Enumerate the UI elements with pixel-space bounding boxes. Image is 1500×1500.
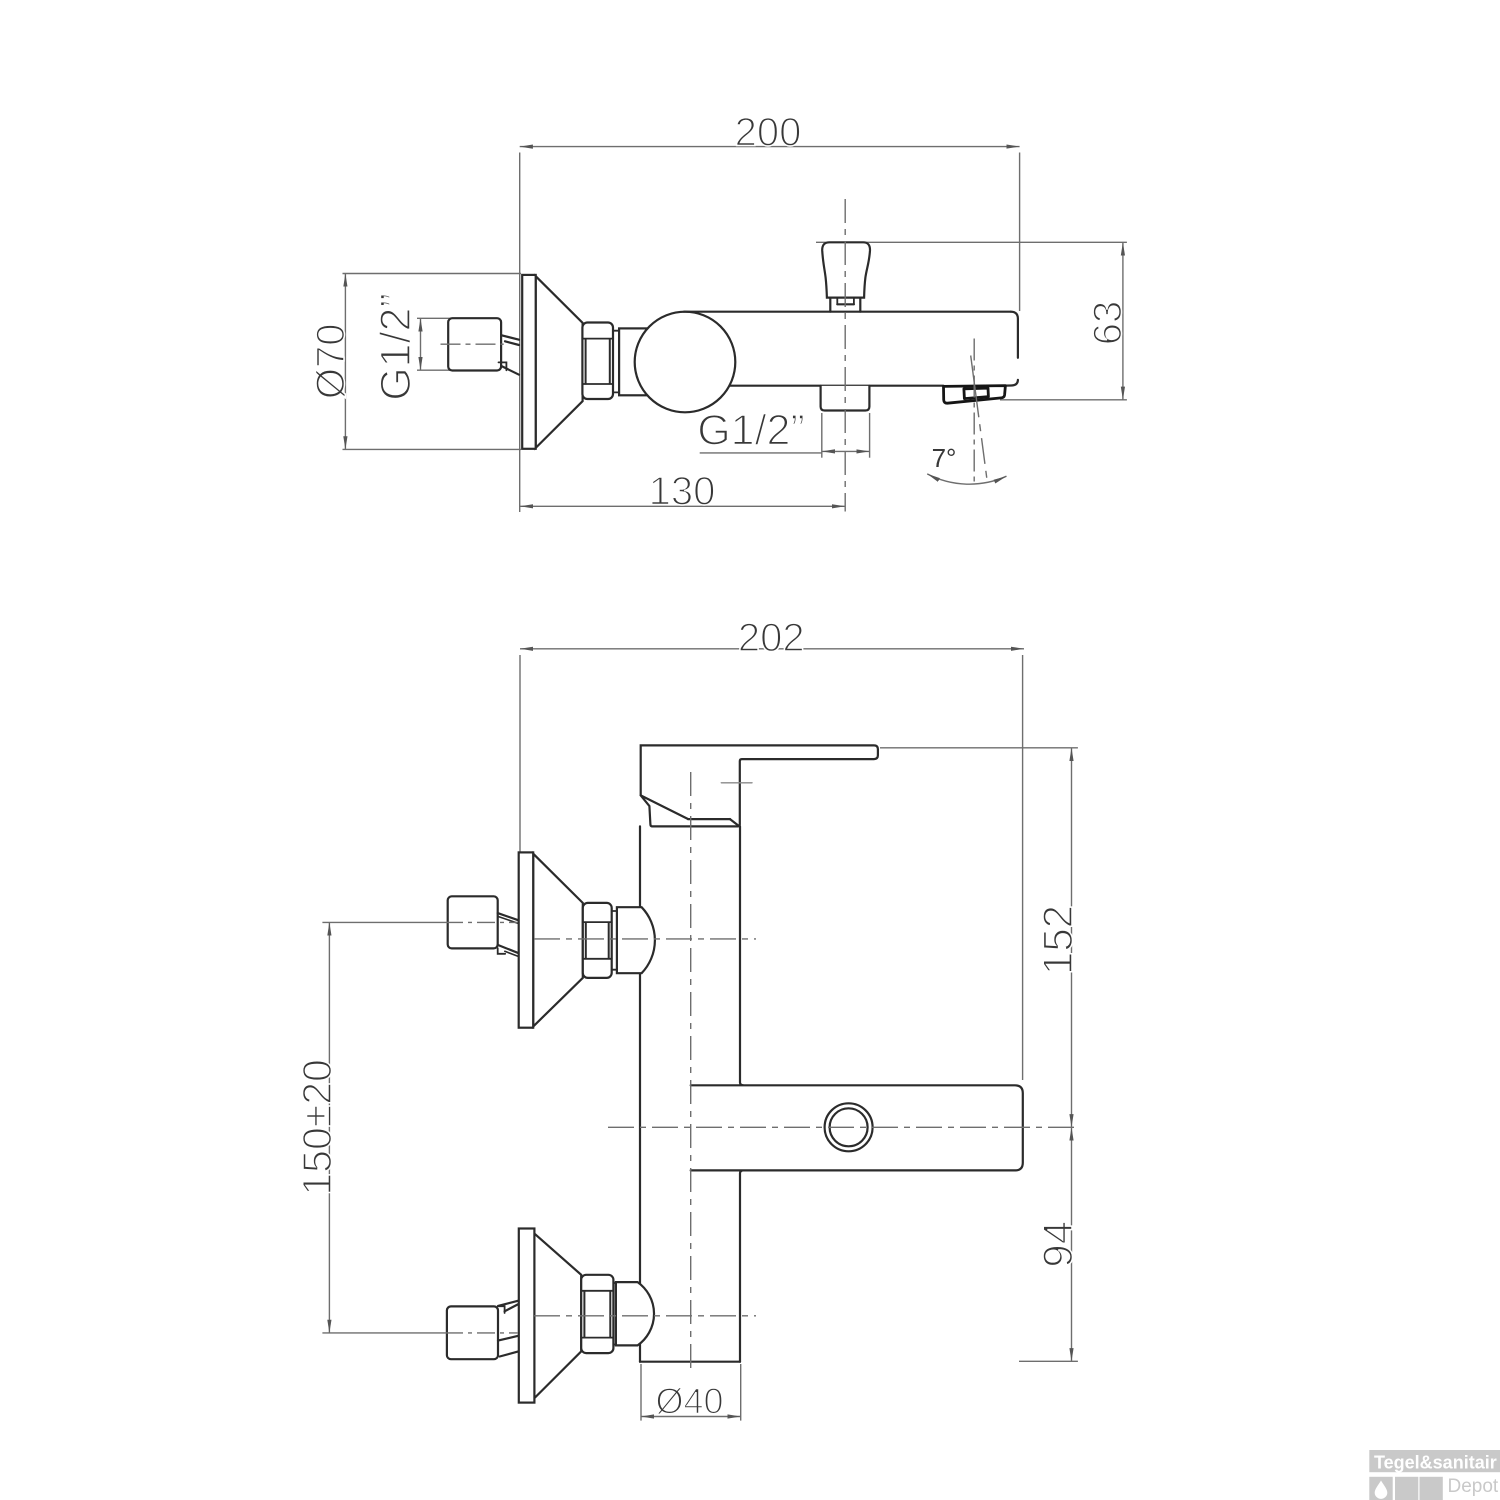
svg-text:94: 94 xyxy=(1034,1221,1081,1268)
svg-text:G1/2”: G1/2” xyxy=(697,407,805,455)
svg-text:7°: 7° xyxy=(932,443,957,473)
svg-text:Tegel&sanitair: Tegel&sanitair xyxy=(1374,1452,1497,1472)
svg-text:150±20: 150±20 xyxy=(294,1059,340,1196)
svg-text:202: 202 xyxy=(738,616,805,660)
svg-text:63: 63 xyxy=(1086,301,1130,346)
svg-text:Ø70: Ø70 xyxy=(309,323,353,399)
svg-text:130: 130 xyxy=(649,469,716,513)
svg-text:G1/2”: G1/2” xyxy=(372,293,420,401)
svg-text:200: 200 xyxy=(735,111,802,155)
svg-text:Depot: Depot xyxy=(1448,1476,1499,1497)
svg-text:152: 152 xyxy=(1034,905,1081,975)
svg-text:Ø40: Ø40 xyxy=(655,1381,723,1422)
